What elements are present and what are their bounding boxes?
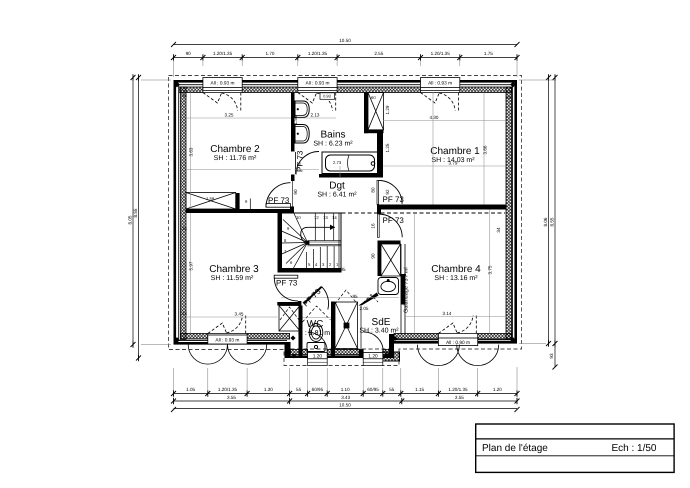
- svg-text:3.25: 3.25: [225, 113, 234, 118]
- svg-text:SH : 13.16 m²: SH : 13.16 m²: [434, 275, 478, 282]
- svg-text:1.10: 1.10: [341, 387, 350, 392]
- svg-text:PF 73: PF 73: [296, 150, 305, 172]
- svg-text:12: 12: [314, 215, 319, 220]
- svg-text:16: 16: [371, 223, 376, 229]
- svg-text:1.75: 1.75: [484, 51, 493, 56]
- svg-text:8.05: 8.05: [128, 215, 133, 224]
- svg-text:1.70: 1.70: [266, 51, 275, 56]
- svg-text:3.55: 3.55: [227, 395, 236, 400]
- svg-text:2.55: 2.55: [374, 51, 383, 56]
- svg-text:All : 0.93 m: All : 0.93 m: [306, 81, 330, 87]
- svg-text:34: 34: [496, 227, 501, 233]
- svg-text:SH : 6.41 m²: SH : 6.41 m²: [317, 192, 357, 199]
- svg-text:SH : 11.59 m²: SH : 11.59 m²: [211, 275, 254, 282]
- svg-text:Dgt: Dgt: [329, 181, 345, 192]
- svg-text:1.20/1.35: 1.20/1.35: [431, 51, 451, 56]
- svg-text:2.05: 2.05: [360, 306, 369, 311]
- svg-text:90: 90: [186, 51, 192, 56]
- svg-text:Chambre 4: Chambre 4: [431, 264, 481, 275]
- svg-text:14: 14: [182, 311, 188, 316]
- svg-text:1.29: 1.29: [385, 105, 390, 114]
- svg-text:SH : 3.40 m²: SH : 3.40 m²: [359, 328, 399, 335]
- svg-text:All : 0.90 m: All : 0.90 m: [446, 340, 470, 346]
- svg-text:1.30: 1.30: [264, 387, 273, 392]
- svg-text:34: 34: [506, 95, 512, 100]
- svg-text:3.63: 3.63: [189, 147, 194, 156]
- svg-text:10: 10: [296, 215, 301, 220]
- svg-text:H : 1.81 m: H : 1.81 m: [298, 330, 330, 337]
- svg-text:Galandage 73 Pml: Galandage 73 Pml: [404, 267, 410, 313]
- svg-text:2.73: 2.73: [333, 160, 342, 165]
- svg-text:Plan de l'étage: Plan de l'étage: [482, 443, 548, 454]
- svg-text:5.97: 5.97: [189, 261, 194, 270]
- svg-text:PF 73: PF 73: [276, 279, 298, 288]
- svg-text:60/95: 60/95: [367, 387, 379, 392]
- svg-text:93: 93: [549, 353, 554, 359]
- svg-text:95: 95: [340, 267, 346, 272]
- svg-text:PF 73: PF 73: [268, 196, 290, 205]
- svg-text:1.20/1.35: 1.20/1.35: [213, 51, 233, 56]
- svg-text:Chambre 2: Chambre 2: [210, 144, 260, 155]
- svg-text:3.75: 3.75: [488, 265, 493, 274]
- svg-text:3.43: 3.43: [341, 395, 350, 400]
- svg-text:1.50: 1.50: [293, 115, 298, 124]
- svg-text:1.15: 1.15: [415, 387, 424, 392]
- svg-text:PF 73: PF 73: [383, 216, 405, 225]
- svg-text:PF 73: PF 73: [383, 195, 405, 204]
- svg-text:SH : 11.76 m²: SH : 11.76 m²: [214, 155, 257, 162]
- svg-text:All : 0.93 m: All : 0.93 m: [428, 81, 452, 87]
- svg-text:Ech : 1/50: Ech : 1/50: [611, 443, 656, 454]
- svg-text:3.14: 3.14: [443, 311, 452, 316]
- svg-text:1.25: 1.25: [385, 143, 390, 152]
- svg-text:1.20: 1.20: [493, 387, 502, 392]
- svg-text:1.05: 1.05: [186, 387, 195, 392]
- svg-text:Bains: Bains: [320, 130, 345, 141]
- svg-text:All : 0.93 m: All : 0.93 m: [215, 338, 239, 344]
- svg-text:55: 55: [389, 387, 395, 392]
- svg-text:4.30: 4.30: [430, 115, 439, 120]
- svg-text:8.06: 8.06: [543, 217, 548, 226]
- svg-text:Chambre 3: Chambre 3: [209, 264, 259, 275]
- svg-text:34: 34: [182, 93, 188, 98]
- svg-text:95: 95: [352, 294, 358, 299]
- svg-text:14: 14: [332, 215, 337, 220]
- svg-text:1.20/1.35: 1.20/1.35: [308, 51, 328, 56]
- svg-text:Chambre 1: Chambre 1: [430, 146, 480, 157]
- svg-text:0.93: 0.93: [323, 94, 332, 99]
- svg-text:34: 34: [182, 226, 188, 231]
- svg-text:WC: WC: [307, 319, 324, 330]
- svg-text:2.13: 2.13: [311, 113, 320, 118]
- svg-text:60: 60: [371, 95, 376, 100]
- svg-text:3.66: 3.66: [483, 145, 488, 154]
- svg-text:90: 90: [371, 253, 376, 259]
- svg-text:8.55: 8.55: [133, 208, 138, 217]
- svg-text:SH : 6.23 m²: SH : 6.23 m²: [313, 141, 353, 148]
- svg-text:55: 55: [296, 387, 302, 392]
- svg-text:13: 13: [323, 215, 328, 220]
- svg-text:1.20/1.35: 1.20/1.35: [448, 387, 468, 392]
- svg-text:3.79: 3.79: [449, 161, 458, 166]
- svg-text:All : 0.93 m: All : 0.93 m: [211, 81, 235, 87]
- svg-text:SdE: SdE: [372, 317, 391, 328]
- svg-text:3.45: 3.45: [235, 312, 244, 317]
- svg-text:1.20/1.35: 1.20/1.35: [218, 387, 238, 392]
- svg-text:60/95: 60/95: [312, 387, 324, 392]
- svg-text:1.59: 1.59: [206, 196, 215, 201]
- svg-text:80: 80: [371, 187, 376, 193]
- svg-text:3.55: 3.55: [455, 395, 464, 400]
- svg-text:8.55: 8.55: [550, 217, 555, 226]
- svg-text:90: 90: [293, 189, 298, 195]
- svg-text:10.50: 10.50: [339, 403, 351, 408]
- svg-text:10.50: 10.50: [339, 38, 351, 43]
- svg-text:92: 92: [385, 189, 390, 195]
